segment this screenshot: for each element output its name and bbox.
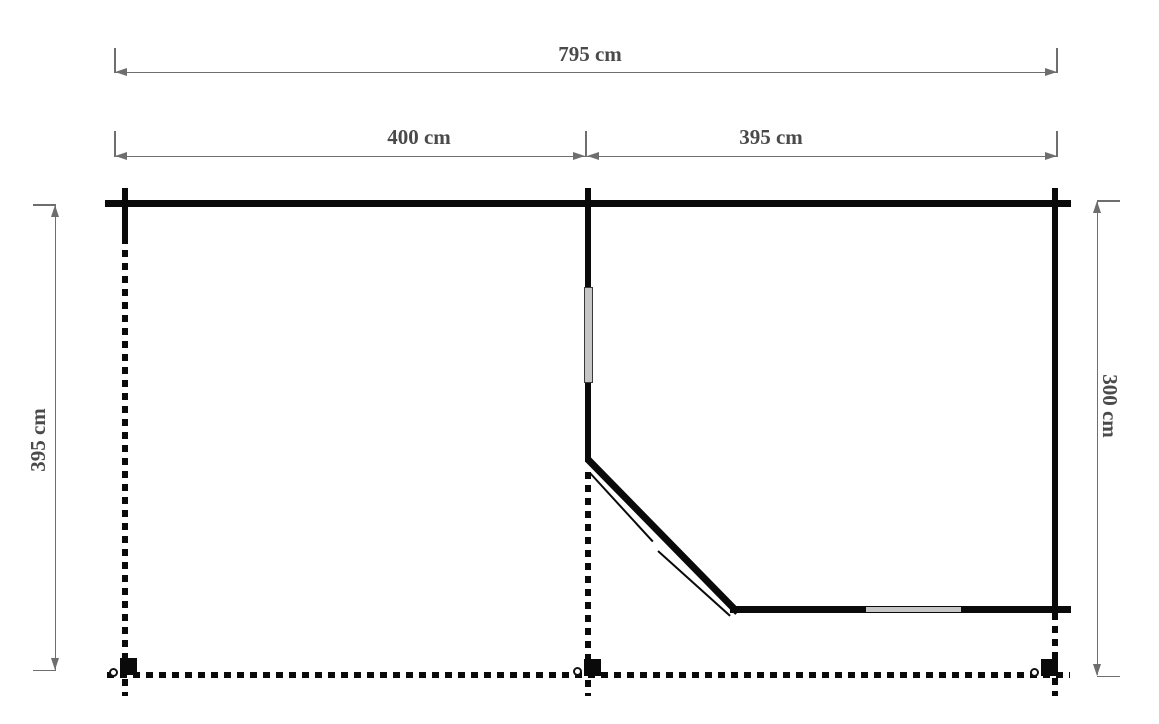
floor-plan-drawing: 795 cm 400 cm 395 cm 395 cm 300 cm: [0, 0, 1159, 724]
dim-label-total-width: 795 cm: [540, 43, 640, 65]
wall-left-dashed: [122, 237, 128, 696]
dim-label-left-section: 400 cm: [369, 126, 469, 148]
dim-label-depth-left: 395 cm: [27, 390, 49, 490]
window-center-wall: [584, 287, 593, 383]
dim-label-depth-right: 300 cm: [1099, 356, 1121, 456]
dim-line: [1097, 201, 1099, 675]
post-anchor-circle-center: [573, 667, 582, 676]
arrowhead-up-icon: [1093, 201, 1101, 213]
wall-left-stub: [122, 188, 128, 237]
dim-line: [115, 72, 1057, 74]
arrowhead-down-icon: [51, 658, 59, 670]
dim-label-right-section: 395 cm: [721, 126, 821, 148]
arrowhead-left-icon: [115, 152, 127, 160]
arrowhead-down-icon: [1093, 664, 1101, 676]
window-bottom-wall: [866, 607, 961, 612]
wall-diagonal: [585, 457, 740, 615]
door-leaf-line-lower: [657, 550, 730, 616]
dim-line: [587, 156, 1057, 158]
post-right: [1041, 659, 1058, 676]
wall-right-dashed: [1052, 613, 1058, 696]
arrowhead-right-icon: [1045, 152, 1057, 160]
arrowhead-right-icon: [1045, 68, 1057, 76]
post-center: [584, 659, 601, 676]
dim-line: [115, 156, 585, 158]
door-leaf-line-upper: [589, 472, 653, 542]
post-anchor-circle-right: [1030, 668, 1039, 677]
arrowhead-right-icon: [573, 152, 585, 160]
post-left: [120, 658, 137, 675]
post-anchor-circle-left: [109, 668, 118, 677]
wall-right: [1052, 188, 1058, 613]
arrowhead-left-icon: [115, 68, 127, 76]
arrowhead-up-icon: [51, 205, 59, 217]
dim-line: [55, 205, 57, 670]
arrowhead-left-icon: [587, 152, 599, 160]
